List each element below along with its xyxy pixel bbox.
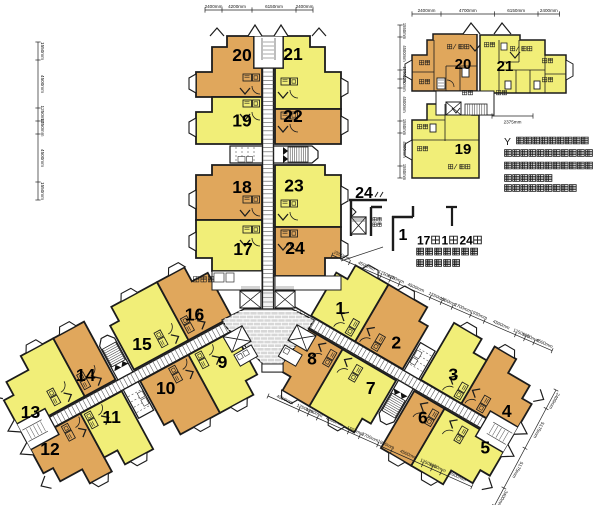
svg-text:1: 1	[399, 227, 408, 244]
svg-text:5: 5	[480, 438, 490, 458]
svg-text:15: 15	[132, 334, 152, 354]
svg-text:4700mm: 4700mm	[459, 8, 477, 13]
svg-text:16: 16	[185, 305, 205, 325]
svg-text:1550mm: 1550mm	[40, 42, 45, 60]
svg-text:4500mm: 4500mm	[402, 141, 407, 158]
svg-text:10: 10	[156, 378, 176, 398]
svg-text:1250mm: 1250mm	[40, 119, 45, 137]
svg-text:21: 21	[497, 58, 514, 75]
svg-text:6150mm: 6150mm	[265, 4, 283, 9]
svg-text:19: 19	[232, 111, 252, 131]
svg-text:4500mm: 4500mm	[402, 45, 407, 62]
svg-text:18: 18	[232, 177, 252, 197]
svg-text:8: 8	[307, 349, 317, 369]
svg-text:12: 12	[40, 439, 60, 459]
svg-text:20: 20	[232, 45, 252, 65]
svg-text:1550mm: 1550mm	[40, 182, 45, 200]
svg-text:4200mm: 4200mm	[228, 4, 246, 9]
svg-text:3: 3	[448, 365, 458, 385]
svg-text:1550mm: 1550mm	[402, 119, 407, 136]
svg-text:6150mm: 6150mm	[507, 8, 525, 13]
svg-text:4500mm: 4500mm	[40, 75, 45, 93]
svg-text:2: 2	[391, 333, 401, 353]
svg-text:11: 11	[102, 407, 121, 427]
svg-text:2400mm: 2400mm	[540, 8, 558, 13]
svg-text:17: 17	[417, 234, 431, 248]
svg-text:23: 23	[284, 176, 304, 196]
svg-text:6: 6	[418, 407, 428, 427]
svg-text:7: 7	[366, 378, 376, 398]
svg-text:17: 17	[233, 239, 252, 259]
svg-text:1550mm: 1550mm	[402, 164, 407, 181]
svg-text:2400mm: 2400mm	[205, 4, 223, 9]
svg-text:9: 9	[218, 352, 228, 372]
svg-text:2400mm: 2400mm	[418, 8, 436, 13]
svg-text:24: 24	[285, 238, 305, 258]
svg-text:1250mm: 1250mm	[402, 75, 407, 92]
svg-text:1550mm: 1550mm	[402, 23, 407, 40]
svg-text:1: 1	[442, 234, 449, 248]
svg-text:4500mm: 4500mm	[40, 149, 45, 167]
svg-text:2375mm: 2375mm	[504, 120, 522, 125]
svg-text:1: 1	[335, 298, 345, 318]
svg-text:Y: Y	[504, 136, 511, 148]
svg-text:13: 13	[21, 402, 41, 422]
svg-text:22: 22	[283, 106, 303, 126]
svg-text:14: 14	[76, 365, 96, 385]
svg-text:24: 24	[355, 185, 373, 202]
svg-text:24: 24	[460, 234, 474, 248]
svg-text:19: 19	[455, 141, 472, 158]
svg-text:21: 21	[283, 44, 303, 64]
svg-text:2400mm: 2400mm	[296, 4, 314, 9]
svg-text:4500mm: 4500mm	[402, 96, 407, 113]
svg-text:20: 20	[455, 56, 472, 73]
svg-text:4: 4	[502, 401, 512, 421]
